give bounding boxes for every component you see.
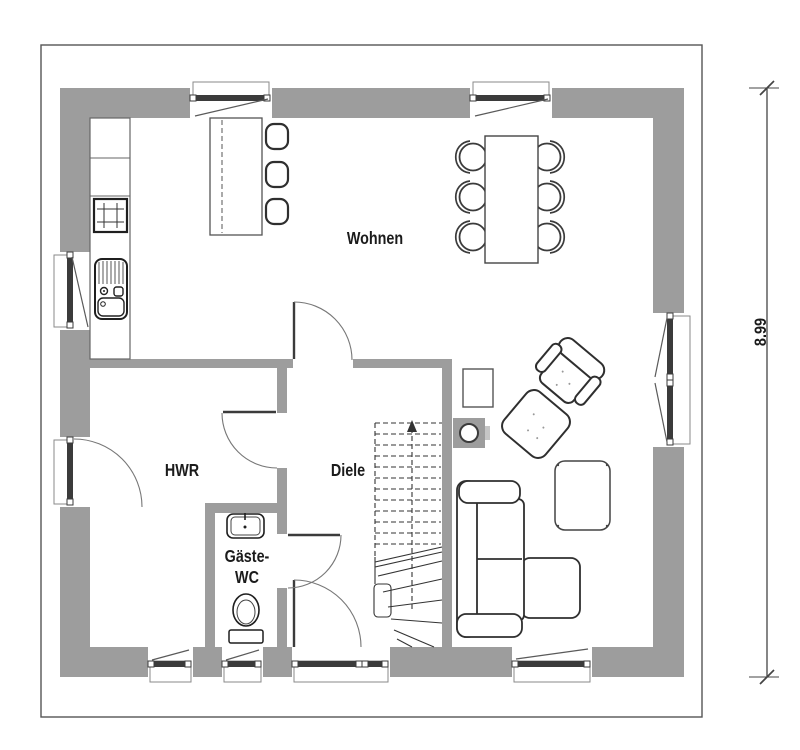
bar-stools bbox=[266, 124, 288, 224]
room-label-hallway: Diele bbox=[315, 460, 381, 481]
floor-plan: Wohnen HWR Diele Gäste- WC 8.99 bbox=[0, 0, 800, 750]
room-label-guest-wc: Gäste- WC bbox=[214, 546, 280, 587]
dimension-value: 8.99 bbox=[751, 307, 771, 358]
kitchen-counter bbox=[90, 118, 130, 359]
interior-walls bbox=[90, 359, 452, 647]
washbasin-icon bbox=[227, 513, 264, 538]
roof-outline bbox=[41, 45, 702, 717]
guest-wc-line1: Gäste- bbox=[214, 546, 280, 567]
kitchen-sink-icon bbox=[95, 259, 127, 319]
dining-chair-icon bbox=[460, 184, 487, 211]
bar-stool-icon bbox=[266, 124, 288, 149]
kitchen-island bbox=[210, 118, 262, 235]
dining-chair-icon bbox=[460, 224, 487, 251]
dimension-line bbox=[749, 81, 779, 684]
room-label-utility: HWR bbox=[149, 460, 215, 481]
bar-stool-icon bbox=[266, 162, 288, 187]
side-table-icon bbox=[463, 369, 493, 407]
staircase-icon bbox=[374, 420, 442, 647]
guest-wc-line2: WC bbox=[214, 567, 280, 588]
dining-table-icon bbox=[485, 136, 538, 263]
dining-chair-icon bbox=[460, 144, 487, 171]
room-label-living: Wohnen bbox=[334, 228, 416, 249]
fireplace-icon bbox=[453, 418, 490, 448]
coffee-table-icon bbox=[555, 461, 610, 530]
dining-set bbox=[456, 136, 565, 263]
hob-icon bbox=[94, 199, 127, 232]
bar-stool-icon bbox=[266, 199, 288, 224]
floor-plan-drawing bbox=[0, 0, 800, 750]
toilet-icon bbox=[229, 594, 263, 643]
stair-direction-arrow bbox=[407, 420, 417, 432]
